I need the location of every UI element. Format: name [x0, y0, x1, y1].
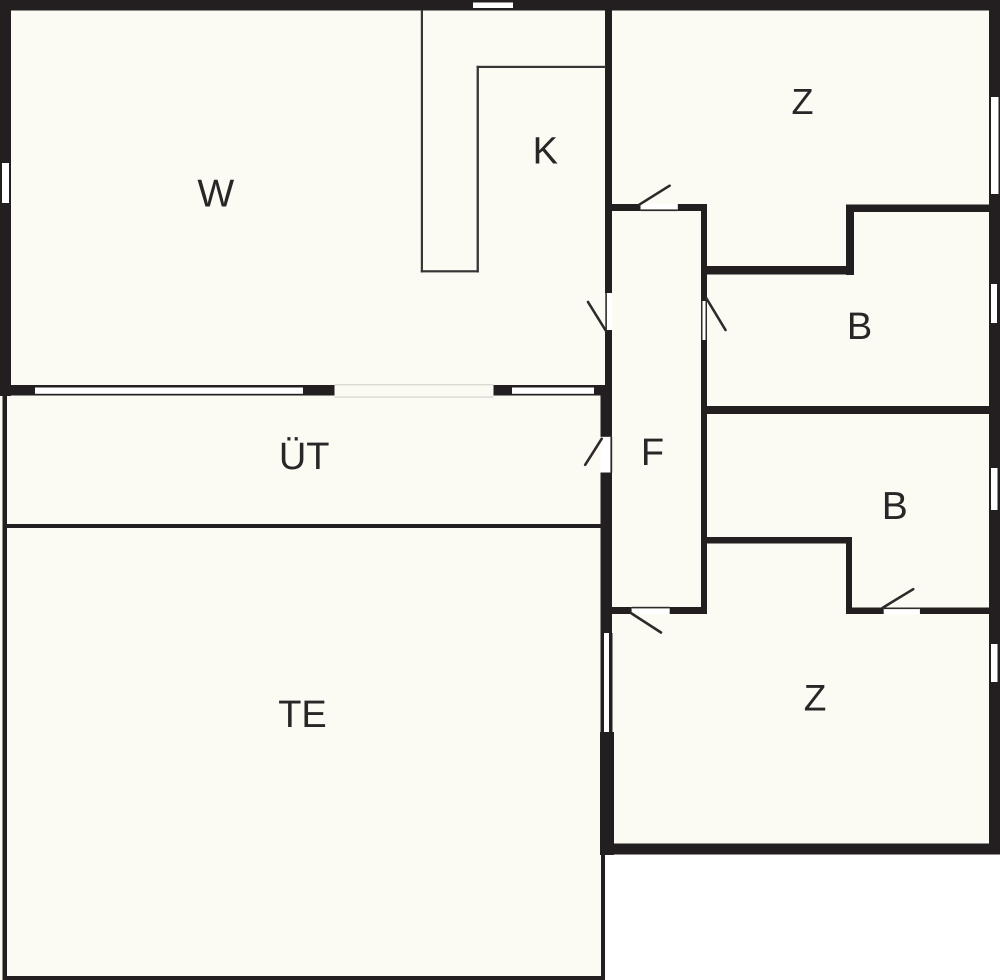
- svg-text:W: W: [197, 172, 234, 215]
- svg-text:Z: Z: [804, 677, 827, 718]
- svg-text:TE: TE: [278, 694, 327, 736]
- svg-text:ÜT: ÜT: [279, 436, 330, 478]
- svg-text:B: B: [847, 306, 872, 348]
- svg-text:Z: Z: [792, 81, 814, 122]
- svg-text:F: F: [641, 432, 664, 474]
- svg-text:B: B: [882, 485, 908, 528]
- svg-text:K: K: [533, 131, 558, 173]
